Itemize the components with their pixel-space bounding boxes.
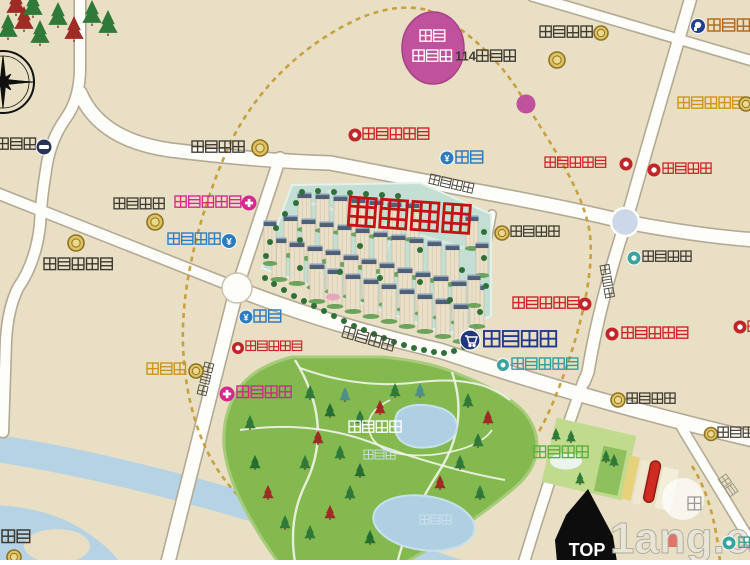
svg-text:¥: ¥ <box>243 313 248 323</box>
svg-text:¥: ¥ <box>226 237 232 248</box>
svg-text:114: 114 <box>455 49 477 64</box>
svg-text:TOP: TOP <box>569 540 606 560</box>
svg-text:¥: ¥ <box>444 154 449 164</box>
